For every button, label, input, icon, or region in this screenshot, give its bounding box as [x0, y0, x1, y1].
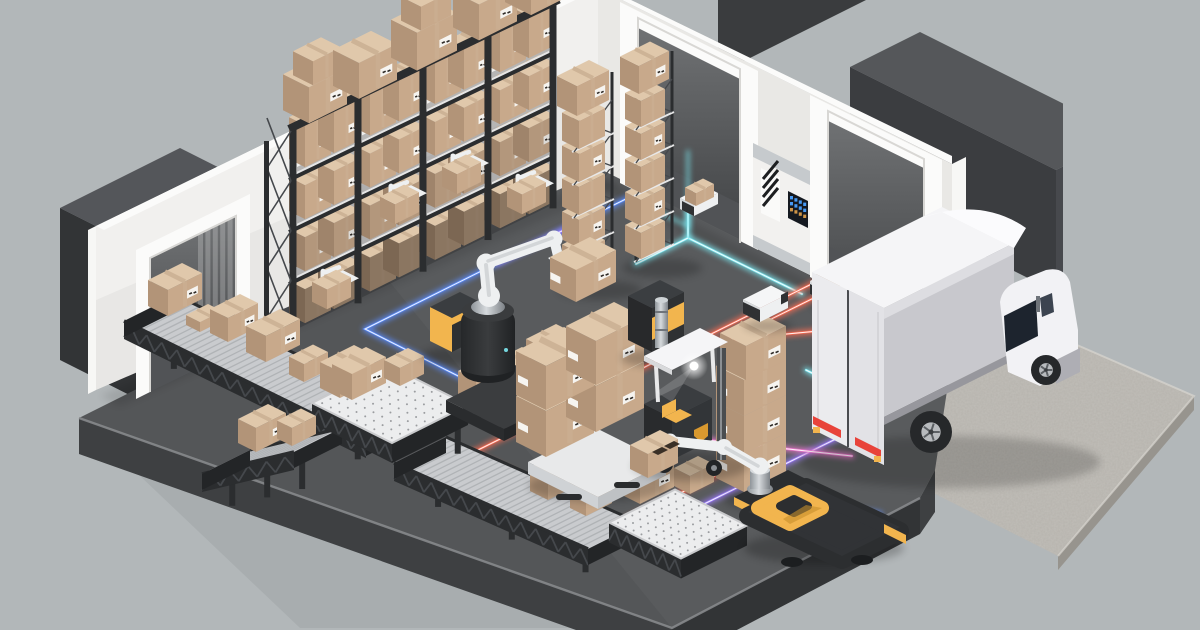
isometric-scene — [0, 0, 1200, 630]
warehouse-illustration — [0, 0, 1200, 630]
